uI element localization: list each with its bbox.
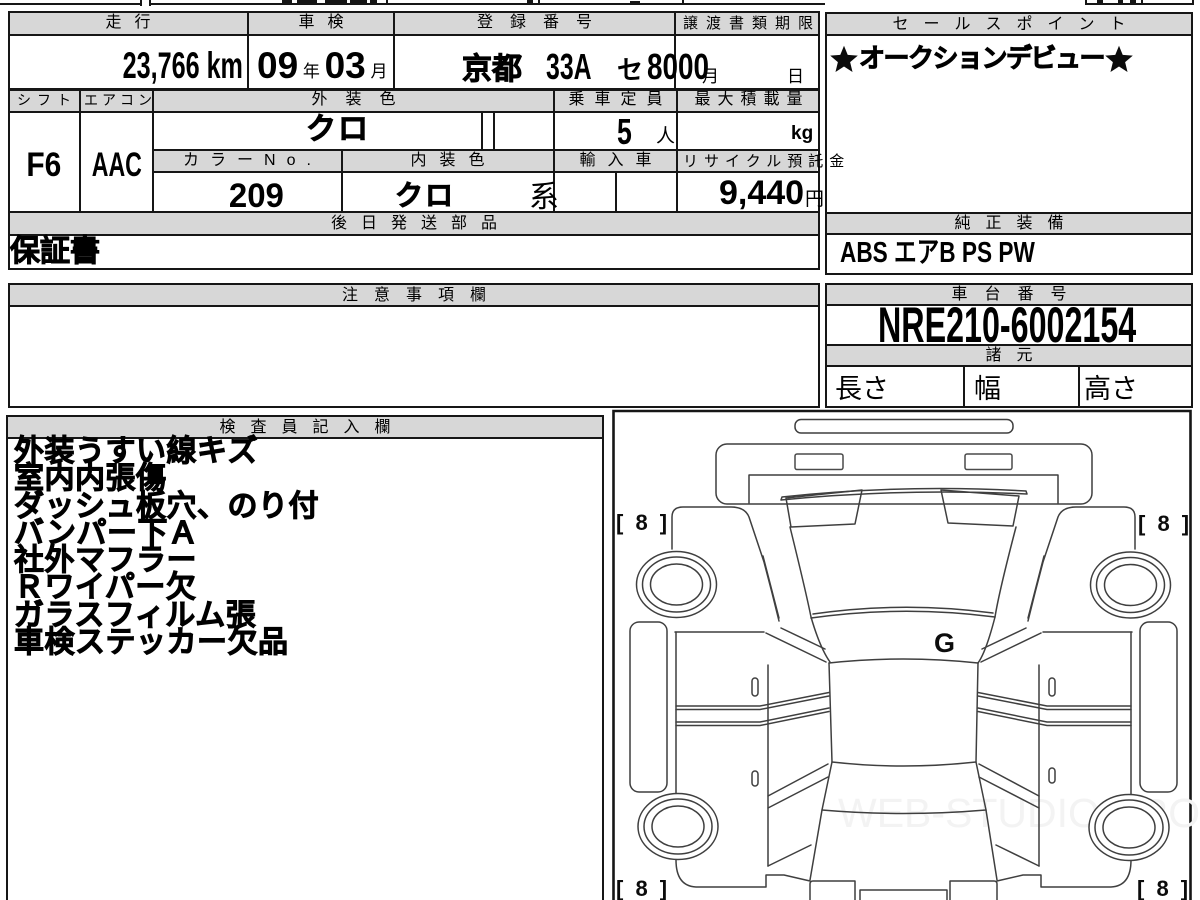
svg-text:[ 8 ]: [ 8 ] — [1137, 876, 1191, 900]
svg-text:G: G — [934, 628, 955, 658]
svg-text:[ 8 ]: [ 8 ] — [616, 876, 670, 900]
svg-text:[ 8 ]: [ 8 ] — [616, 510, 670, 535]
svg-text:[ 8 ]: [ 8 ] — [1138, 511, 1192, 536]
